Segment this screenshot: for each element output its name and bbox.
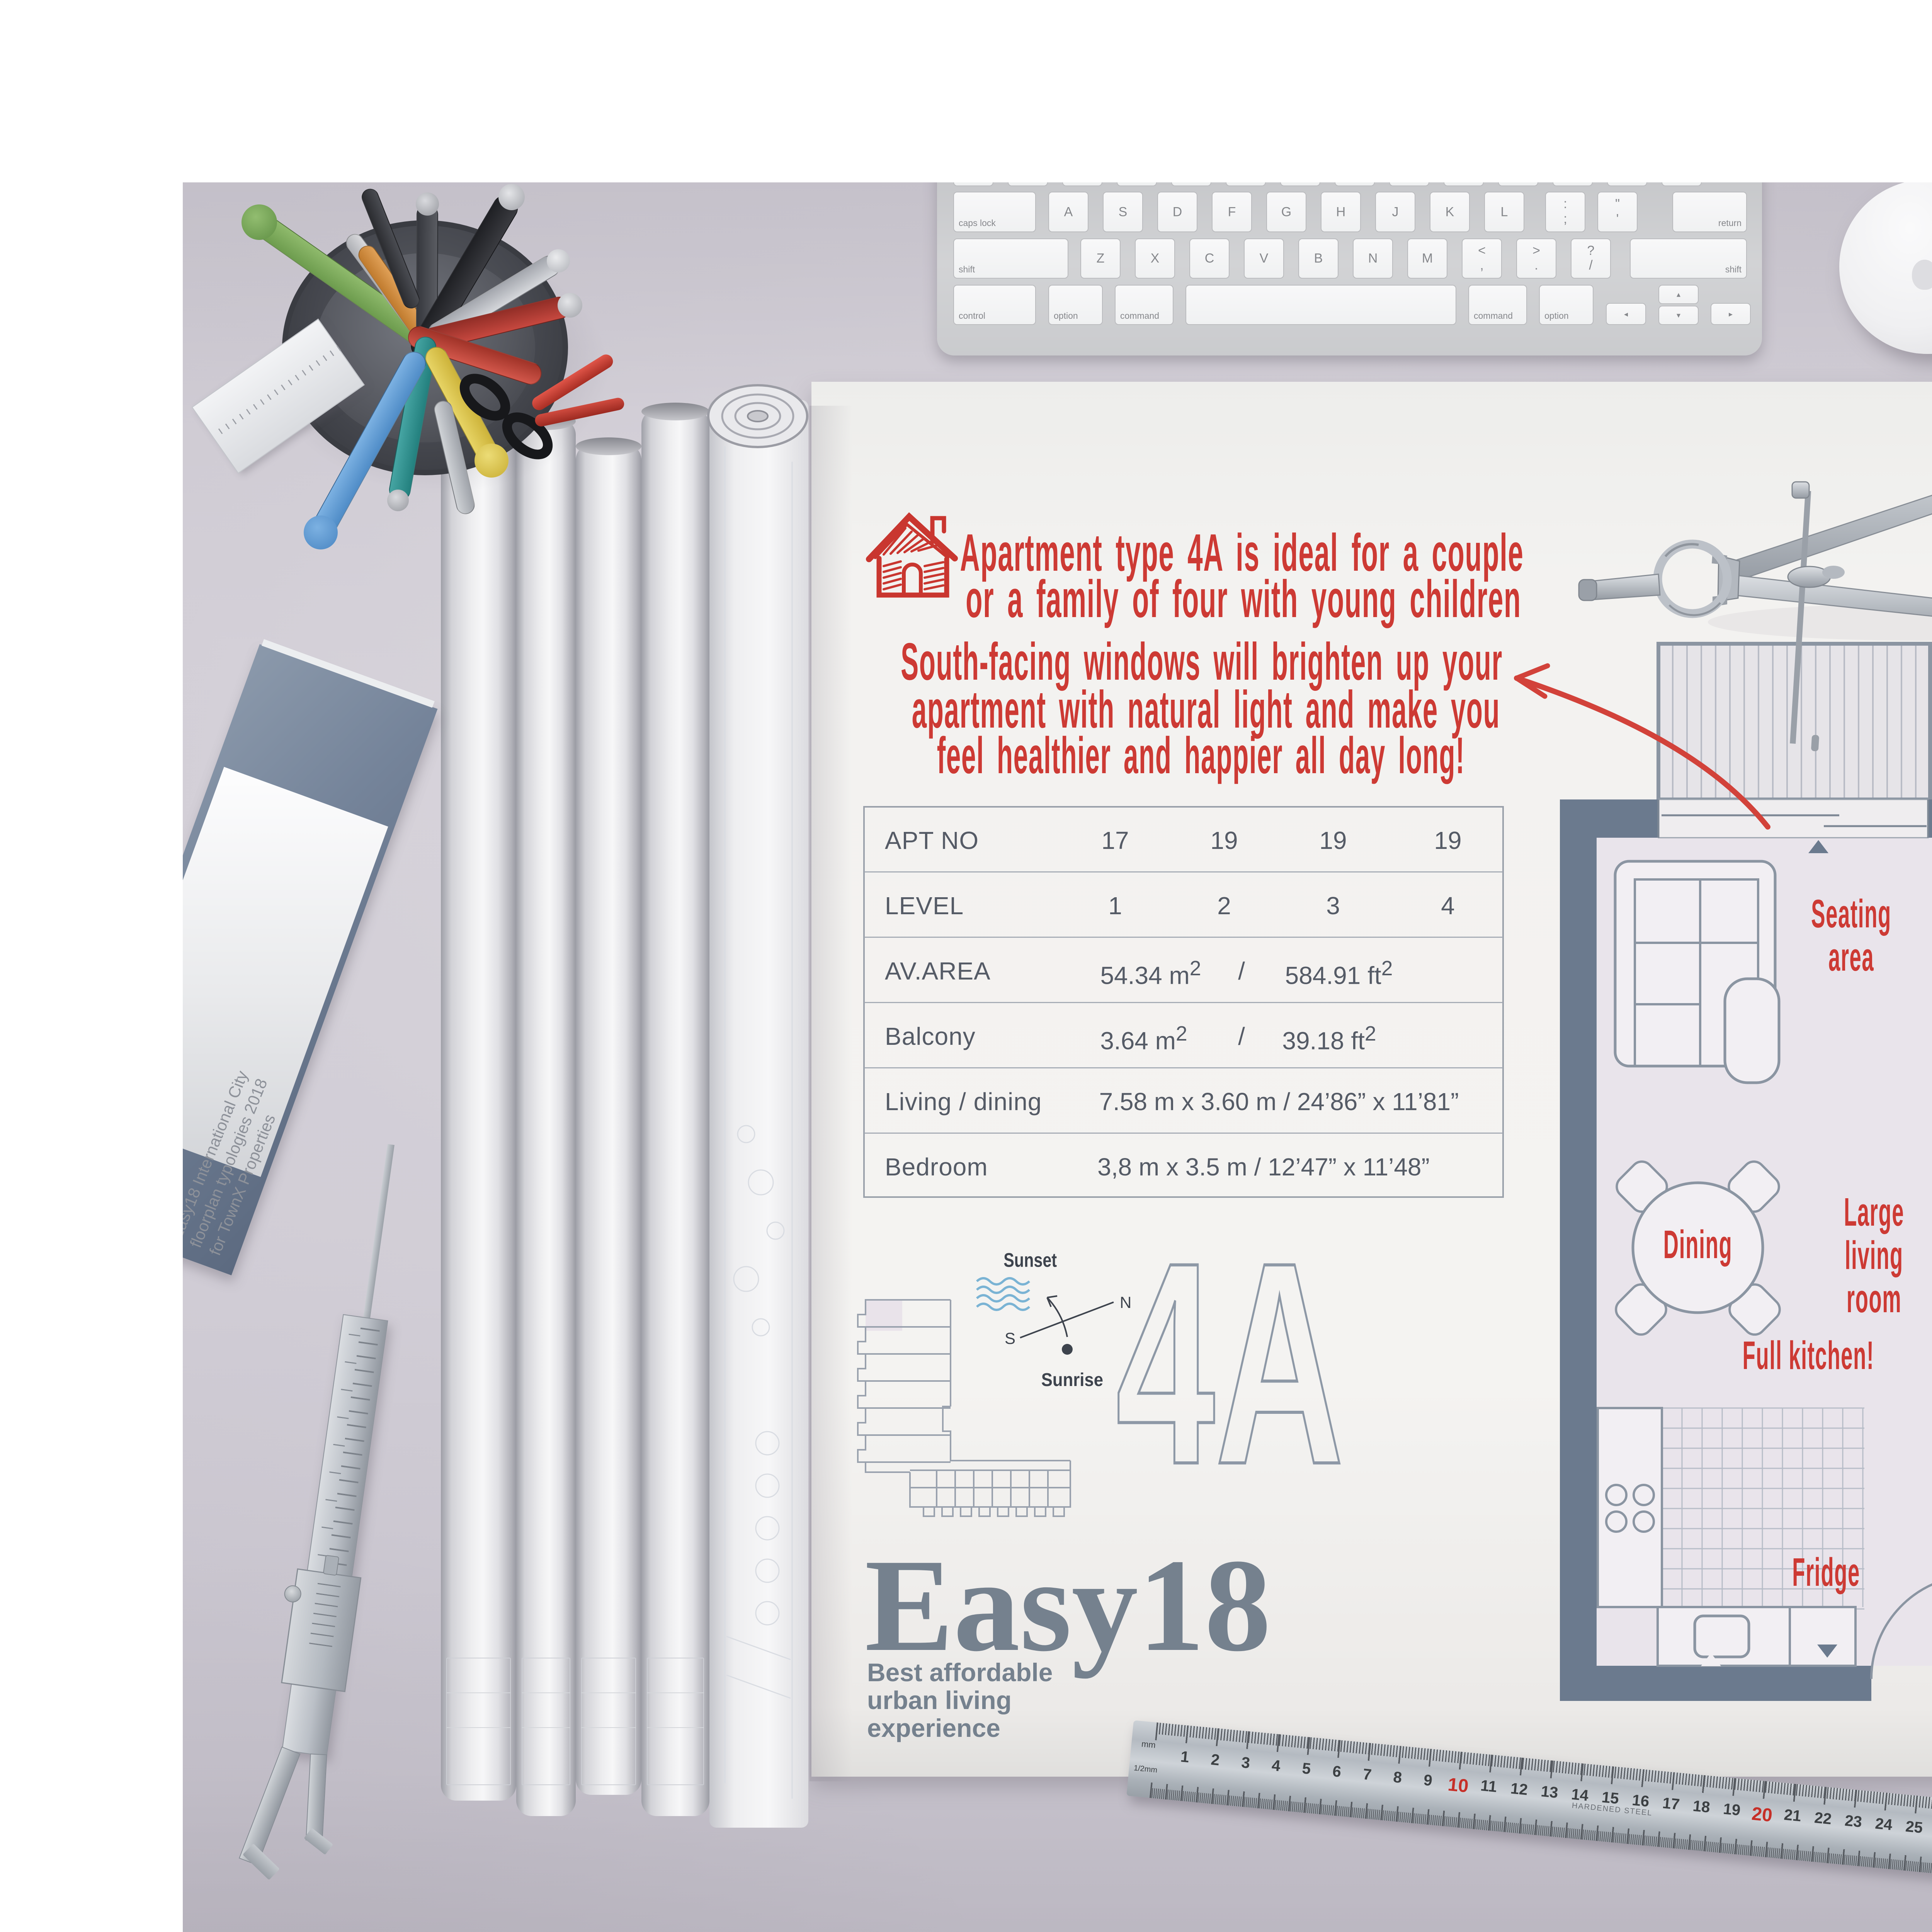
svg-text:Dining: Dining xyxy=(1663,1223,1733,1267)
svg-text:Seating: Seating xyxy=(1811,892,1891,936)
svg-text:area: area xyxy=(1828,935,1874,980)
svg-text:Large: Large xyxy=(1844,1190,1904,1235)
svg-text:room: room xyxy=(1847,1277,1902,1321)
svg-text:Fridge: Fridge xyxy=(1792,1551,1860,1595)
svg-text:S: S xyxy=(1005,1329,1015,1347)
svg-text:living: living xyxy=(1845,1234,1903,1278)
svg-text:Full kitchen!: Full kitchen! xyxy=(1743,1334,1874,1378)
svg-text:Sunset: Sunset xyxy=(1003,1249,1057,1271)
svg-text:Sunrise: Sunrise xyxy=(1041,1369,1103,1390)
